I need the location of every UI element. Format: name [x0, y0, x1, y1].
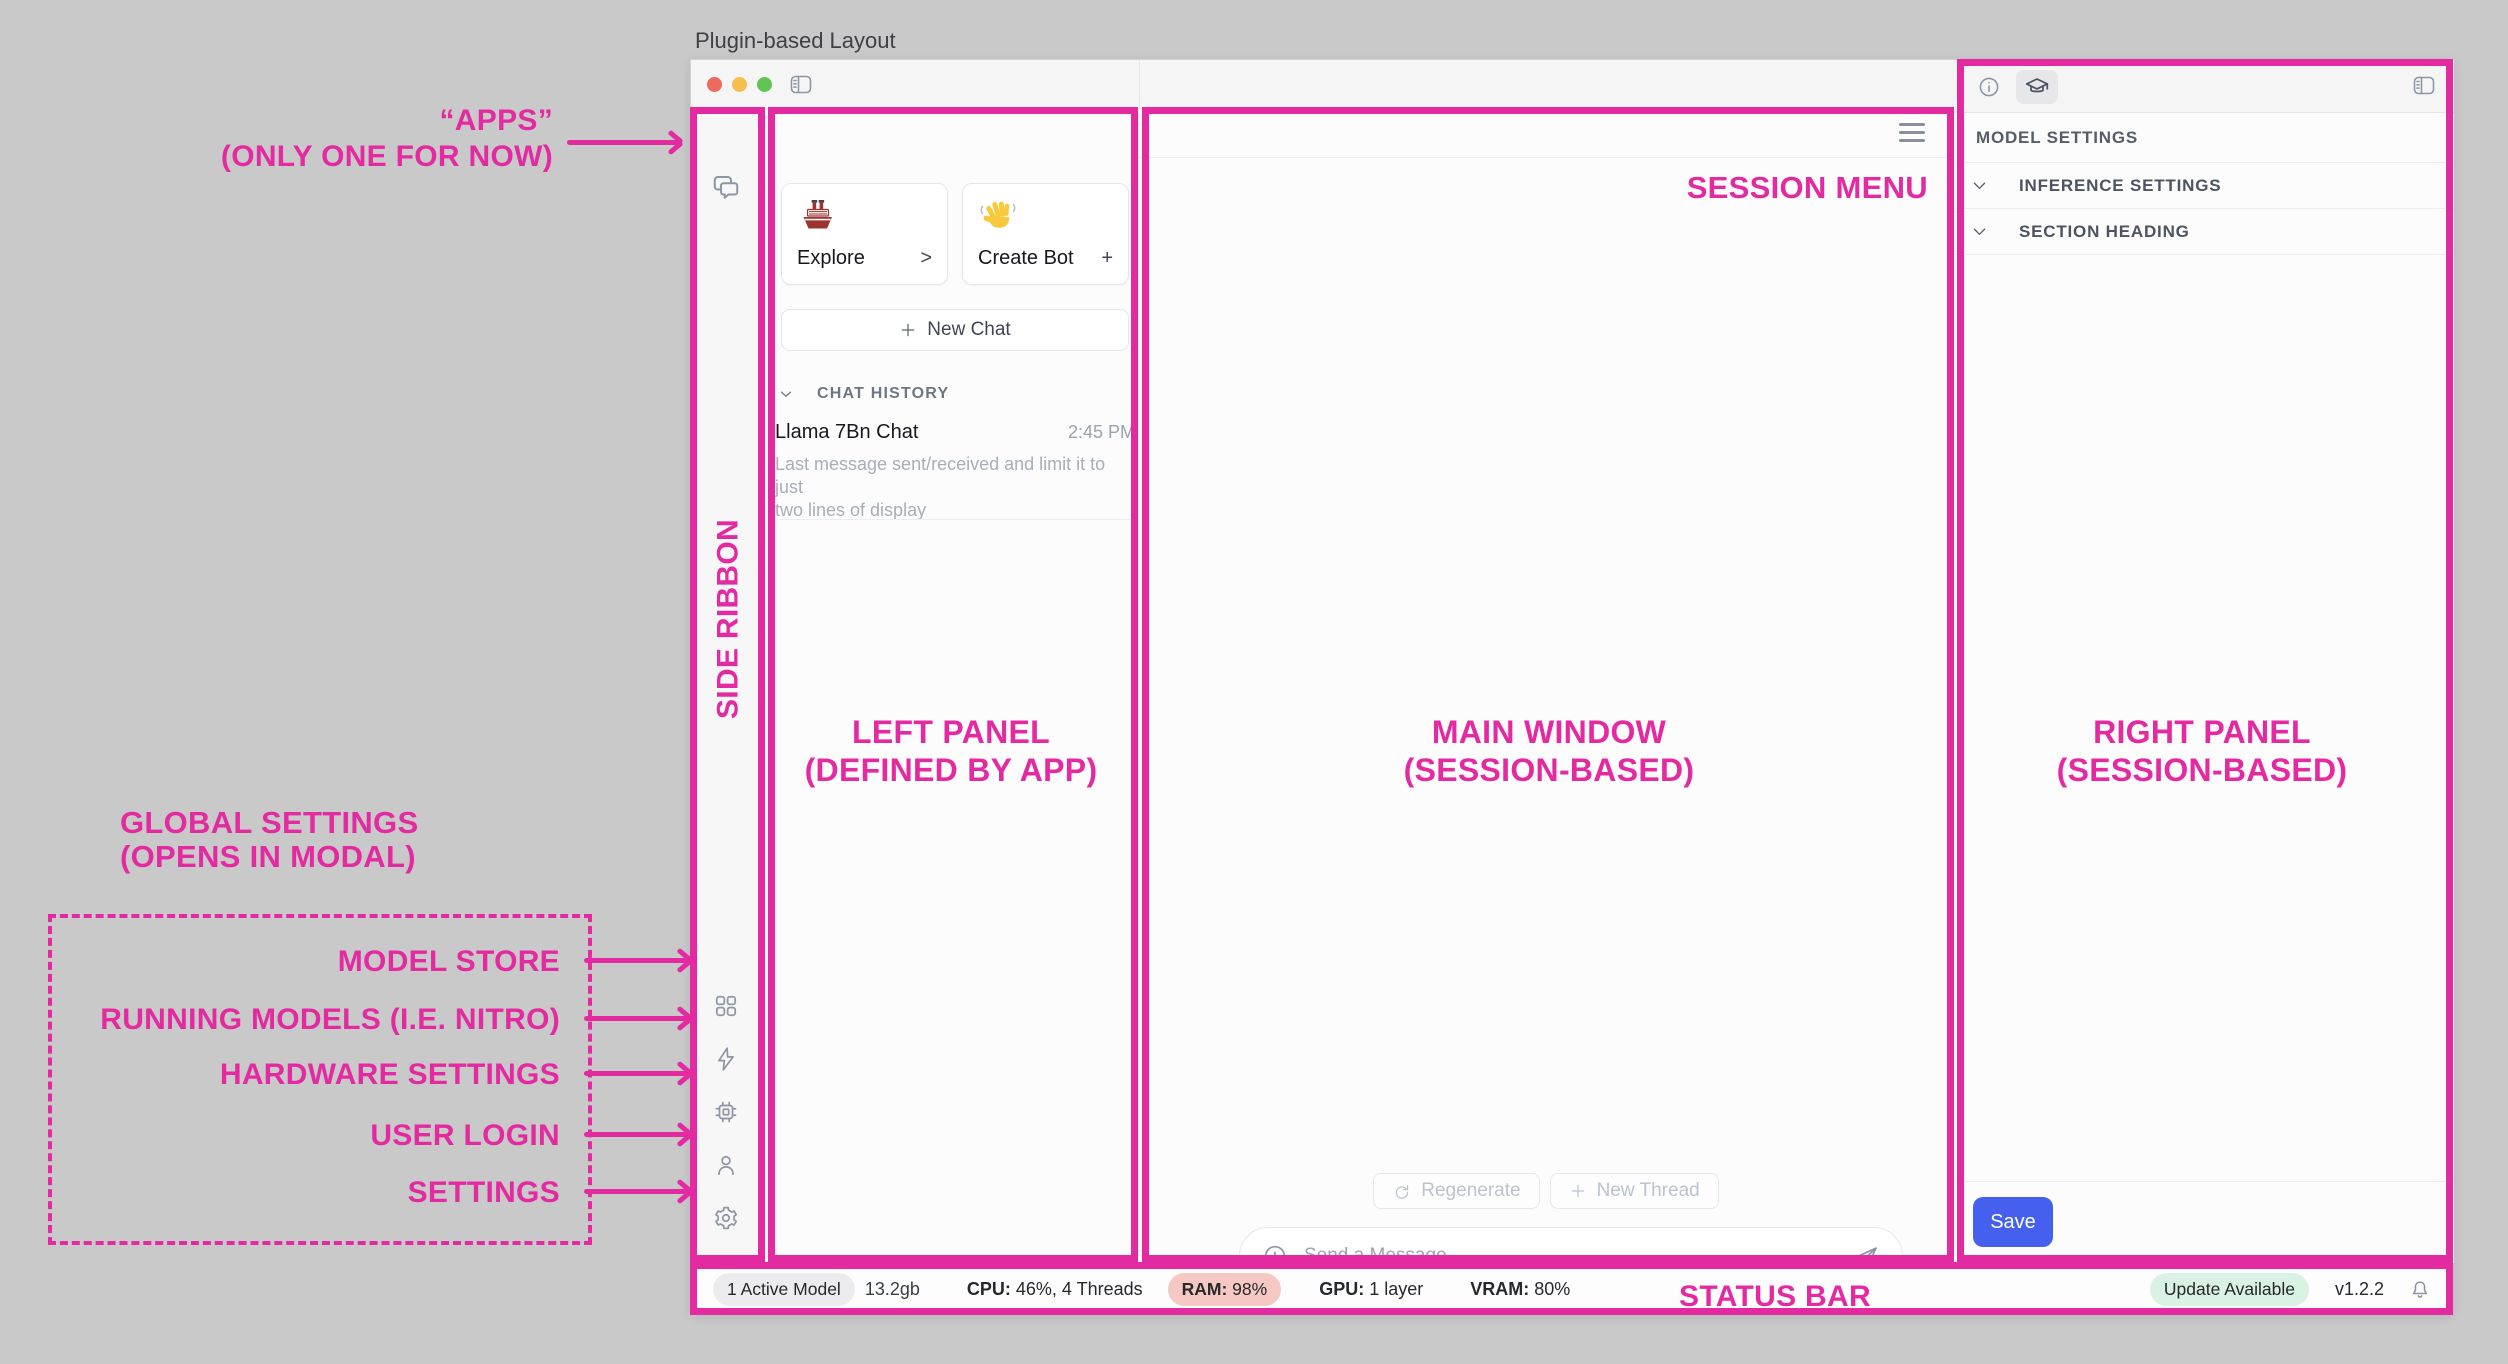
divider [779, 519, 1134, 520]
chat-history-header[interactable]: CHAT HISTORY [777, 385, 949, 403]
main-window-annotation: MAIN WINDOW (SESSION-BASED) [1349, 713, 1749, 789]
chevron-down-icon [1970, 176, 1989, 195]
model-store-arrow [584, 958, 688, 963]
memory-value: 13.2gb [865, 1279, 920, 1300]
session-topbar [1139, 109, 1953, 158]
update-available-badge: Update Available [2150, 1273, 2309, 1306]
settings-annotation: SETTINGS [60, 1175, 560, 1210]
explore-card[interactable]: Explore > [781, 183, 948, 285]
hamburger-icon[interactable] [1899, 123, 1925, 142]
close-window-button[interactable] [707, 77, 722, 92]
gear-icon[interactable] [706, 1198, 746, 1238]
new-thread-label: New Thread [1597, 1180, 1700, 1202]
save-button[interactable]: Save [1973, 1197, 2053, 1247]
inference-settings-row[interactable]: INFERENCE SETTINGS [1954, 163, 2454, 209]
minimize-window-button[interactable] [732, 77, 747, 92]
bell-icon[interactable] [2408, 1278, 2432, 1302]
desktop-background: Plugin-based Layout [0, 0, 2508, 1364]
active-model-badge: 1 Active Model [713, 1273, 855, 1306]
plus-icon [899, 321, 917, 339]
left-panel-annotation: LEFT PANEL (DEFINED BY APP) [761, 713, 1141, 789]
right-panel-header [1954, 60, 2454, 113]
chat-history-item[interactable]: Llama 7Bn Chat 2:45 PM Last message sent… [775, 421, 1135, 522]
apps-arrow [567, 140, 679, 145]
app-window: Explore > [690, 59, 2453, 1315]
chip-icon[interactable] [706, 1092, 746, 1132]
wave-emoji [978, 197, 1113, 242]
chat-item-time: 2:45 PM [1068, 422, 1135, 443]
running-models-annotation: RUNNING MODELS (I.E. NITRO) [60, 1002, 560, 1037]
section-heading-row[interactable]: SECTION HEADING [1954, 209, 2454, 255]
regenerate-button[interactable]: Regenerate [1373, 1173, 1539, 1209]
right-panel-annotation: RIGHT PANEL (SESSION-BASED) [2002, 713, 2402, 789]
refresh-icon [1392, 1182, 1411, 1201]
apps-annotation: “APPS” (ONLY ONE FOR NOW) [130, 103, 553, 175]
divider [1954, 1181, 2454, 1182]
page-title: Plugin-based Layout [695, 28, 896, 54]
main-window: Regenerate New Thread [1139, 109, 1954, 1263]
ship-emoji [797, 197, 932, 242]
version-label: v1.2.2 [2335, 1279, 2384, 1300]
chat-history-label: CHAT HISTORY [817, 385, 949, 403]
create-bot-plus: + [1101, 247, 1113, 270]
explore-chevron: > [920, 247, 932, 270]
settings-arrow [584, 1189, 688, 1194]
chevron-down-icon [777, 385, 795, 403]
chat-item-title: Llama 7Bn Chat [775, 421, 918, 444]
new-chat-label: New Chat [927, 319, 1010, 341]
explore-label: Explore [797, 247, 865, 270]
side-ribbon-annotation: SIDE RIBBON [710, 519, 745, 719]
ram-status-badge: RAM: 98% [1168, 1273, 1282, 1306]
new-chat-button[interactable]: New Chat [781, 309, 1129, 351]
sidebar-toggle-icon[interactable] [2410, 74, 2438, 103]
hardware-settings-annotation: HARDWARE SETTINGS [60, 1057, 560, 1092]
model-settings-label: MODEL SETTINGS [1976, 128, 2138, 148]
sidebar-toggle-icon[interactable] [787, 73, 815, 102]
model-store-annotation: MODEL STORE [60, 944, 560, 979]
chat-bubbles-icon[interactable] [706, 167, 746, 207]
create-bot-card[interactable]: Create Bot + [962, 183, 1129, 285]
inference-settings-label: INFERENCE SETTINGS [2019, 176, 2221, 196]
left-panel: Explore > [761, 109, 1139, 1263]
running-models-arrow [584, 1016, 688, 1021]
status-bar-annotation: STATUS BAR [1625, 1279, 1925, 1314]
section-heading-label: SECTION HEADING [2019, 222, 2190, 242]
plus-icon [1569, 1182, 1587, 1200]
vram-status: VRAM: 80% [1470, 1279, 1570, 1300]
session-menu-annotation: SESSION MENU [1560, 170, 1928, 207]
grid-icon[interactable] [706, 986, 746, 1026]
user-login-arrow [584, 1132, 688, 1137]
graduation-cap-icon[interactable] [2016, 70, 2058, 104]
regenerate-label: Regenerate [1421, 1180, 1520, 1202]
lightning-icon[interactable] [706, 1039, 746, 1079]
hardware-settings-arrow [584, 1071, 688, 1076]
global-settings-annotation: GLOBAL SETTINGS (OPENS IN MODAL) [120, 806, 418, 874]
titlebar-divider [1139, 60, 1140, 109]
info-icon[interactable] [1968, 70, 2010, 104]
zoom-window-button[interactable] [757, 77, 772, 92]
person-icon[interactable] [706, 1145, 746, 1185]
new-thread-button[interactable]: New Thread [1550, 1173, 1719, 1209]
user-login-annotation: USER LOGIN [60, 1118, 560, 1153]
cpu-status: CPU: 46%, 4 Threads [967, 1279, 1143, 1300]
right-panel: MODEL SETTINGS INFERENCE SETTINGS SECTIO… [1954, 60, 2454, 1263]
create-bot-label: Create Bot [978, 247, 1074, 270]
model-settings-header-row: MODEL SETTINGS [1954, 113, 2454, 163]
gpu-status: GPU: 1 layer [1319, 1279, 1423, 1300]
chevron-down-icon [1970, 222, 1989, 241]
status-bar: 1 Active Model 13.2gb CPU: 46%, 4 Thread… [691, 1263, 2452, 1315]
chat-item-preview: Last message sent/received and limit it … [775, 453, 1135, 499]
